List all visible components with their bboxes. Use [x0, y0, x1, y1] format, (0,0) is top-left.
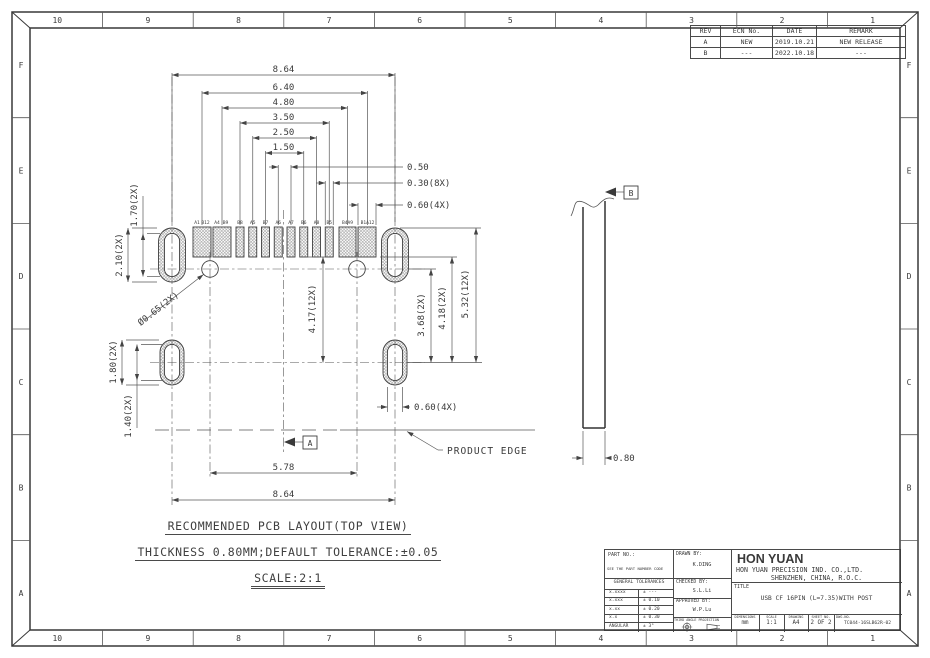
pin-label: B6: [301, 220, 307, 226]
break-line: [571, 198, 614, 216]
pin-label: B9: [223, 220, 229, 226]
revision-table-grid: REVECN No.DATEREMARKANEW2019.10.21NEW RE…: [690, 25, 906, 59]
side-view: B0.80: [571, 186, 638, 465]
slot-hole: [388, 345, 403, 381]
dimensions-label: DIMENSIONS: [731, 616, 759, 620]
rev-cell: ---: [721, 48, 773, 59]
dim-hole: Ø0.65(2X): [136, 290, 181, 329]
note-thickness: THICKNESS 0.80MM;DEFAULT TOLERANCE:±0.05: [135, 545, 442, 561]
zone-row-label: F: [907, 61, 912, 70]
datum-a-box: [303, 436, 317, 449]
npth-hole: [349, 261, 366, 278]
zone-row-label: D: [907, 272, 912, 281]
rev-header-cell: REMARK: [817, 26, 906, 37]
tol-value: ± 0.10: [643, 599, 660, 604]
general-tolerances-label: GENERAL TOLERANCES: [605, 581, 673, 586]
product-edge-label: PRODUCT EDGE: [447, 446, 528, 457]
dim-slot: 0.60(4X): [414, 403, 457, 413]
pin-label: B8: [237, 220, 243, 226]
divider: [638, 589, 639, 632]
zone-row-label: D: [19, 272, 24, 281]
dim-left: 1.70(2X): [130, 183, 140, 226]
zone-column-label: 6: [417, 16, 422, 25]
leader-dimensions: 0.500.30(8X)0.60(4X): [269, 163, 450, 225]
checked-by-value: S.L.Li: [673, 589, 731, 594]
tol-value: ± 0.20: [643, 608, 660, 613]
pin-label: B7: [263, 220, 269, 226]
zone-column-label: 1: [870, 634, 875, 643]
title-label: TITLE: [734, 585, 749, 590]
product-edge: PRODUCT EDGE: [155, 430, 535, 457]
third-angle-projection-icon: [679, 622, 727, 632]
zone-column-label: 3: [689, 16, 694, 25]
dim-vertical: 5.32(12X): [461, 270, 471, 319]
zone-column-label: 4: [598, 16, 603, 25]
drawn-by-label: DRAWN BY:: [676, 553, 702, 558]
dim-leader: 0.30(8X): [407, 179, 450, 189]
zone-row-label: E: [907, 167, 912, 176]
zone-row-label: F: [19, 61, 24, 70]
zone-row-label: C: [907, 378, 912, 387]
revision-table: REVECN No.DATEREMARKANEW2019.10.21NEW RE…: [690, 25, 901, 59]
title-block: PART NO.: SEE THE PART NUMBER CODE GENER…: [604, 549, 901, 631]
smt-pad-wide: [213, 227, 231, 257]
part-no-value: SEE THE PART NUMBER CODE: [607, 567, 663, 571]
dim-top: 3.50: [273, 113, 295, 123]
rev-cell: NEW RELEASE: [817, 37, 906, 48]
sheet-label: SHEET NO.: [808, 616, 834, 620]
drawn-by-value: K.DING: [673, 563, 731, 568]
mounting-slot-pad: [382, 228, 409, 282]
rev-header-cell: REV: [691, 26, 721, 37]
vertical-dimensions: 4.17(12X)3.68(2X)4.18(2X)5.32(12X): [305, 228, 482, 363]
checked-by-label: CHECKED BY:: [676, 581, 708, 586]
tol-value: ± ---: [643, 591, 657, 596]
pin-label: A7: [288, 220, 294, 226]
drawing-size-label: DRAWING: [784, 616, 808, 620]
projection-label: THIRD ANGLE PROJECTION: [674, 619, 719, 622]
dim-top: 2.50: [273, 128, 295, 138]
rev-cell: 2019.10.21: [773, 37, 817, 48]
slot-width-dimension: 0.60(4X): [377, 387, 457, 413]
divider: [731, 550, 732, 632]
dim-bottom: 8.64: [273, 490, 295, 500]
pin-label: A6: [275, 220, 281, 226]
part-no-label: PART NO.:: [608, 553, 635, 558]
scale-value: 1:1: [759, 621, 784, 627]
zone-column-label: 3: [689, 634, 694, 643]
zone-column-label: 2: [780, 634, 785, 643]
pin-label: A5: [250, 220, 256, 226]
zone-column-label: 4: [598, 634, 603, 643]
drawing-size-value: A4: [784, 621, 808, 627]
mounting-slot-pad: [160, 340, 184, 385]
smt-pad-narrow: [325, 227, 333, 257]
slot-hole: [388, 234, 403, 277]
smt-pad-narrow: [236, 227, 244, 257]
dwg-no-value: TC044-16SLB62R-02: [834, 622, 901, 627]
divider: [673, 578, 731, 579]
datum-a-label: A: [308, 439, 313, 448]
rev-cell: B: [691, 48, 721, 59]
dwg-no-label: DWG.NO.: [836, 616, 851, 620]
sheet-value: 2 OF 2: [808, 621, 834, 627]
dim-vertical: 4.17(12X): [308, 285, 318, 334]
dim-leader: 0.50: [407, 163, 429, 173]
rev-cell: NEW: [721, 37, 773, 48]
tol-label: x.xxxx: [609, 591, 626, 596]
zone-row-label: C: [19, 378, 24, 387]
dim-left: 1.40(2X): [124, 394, 134, 437]
dim-top: 6.40: [273, 83, 295, 93]
smt-pad-narrow: [249, 227, 257, 257]
rev-cell: 2022.10.18: [773, 48, 817, 59]
dim-thickness: 0.80: [613, 454, 635, 464]
dim-top: 4.80: [273, 98, 295, 108]
zone-column-label: 1: [870, 16, 875, 25]
hole-callout: Ø0.65(2X): [136, 275, 204, 329]
pin-label: B5: [326, 220, 332, 226]
smt-pad-narrow: [300, 227, 308, 257]
tol-label: ANGULAR: [609, 625, 628, 630]
pin-label: B1A12: [361, 220, 375, 226]
tol-label: x.xxx: [609, 599, 623, 604]
zone-row-label: E: [19, 167, 24, 176]
dim-bottom: 5.78: [273, 463, 295, 473]
zone-column-label: 9: [145, 16, 150, 25]
slot-hole: [165, 345, 180, 381]
zone-column-label: 5: [508, 16, 513, 25]
company-name: HON YUAN: [737, 553, 803, 566]
datum-b-triangle: [605, 188, 616, 197]
company-location: SHENZHEN, CHINA, R.O.C.: [731, 575, 902, 582]
smt-pad-wide: [339, 227, 356, 257]
dim-leader: 0.60(4X): [407, 201, 450, 211]
dim-vertical: 3.68(2X): [417, 293, 427, 336]
smt-pad-narrow: [262, 227, 270, 257]
zone-column-label: 7: [327, 16, 332, 25]
dim-left: 2.10(2X): [115, 233, 125, 276]
tol-value: ± 3°: [643, 625, 654, 630]
company-full: HON YUAN PRECISION IND. CO.,LTD.: [736, 567, 863, 574]
smt-pad-narrow: [313, 227, 321, 257]
engineering-drawing-page: RECOMMENDED PCB LAYOUT(TOP VIEW) THICKNE…: [0, 0, 930, 658]
footprint-pads: [159, 227, 409, 385]
pin-label: B12: [201, 220, 210, 226]
bottom-dimensions: 5.788.64: [172, 463, 395, 502]
mounting-slot-pad: [383, 340, 407, 385]
datum-a: A: [284, 436, 317, 449]
pin-label: A8: [314, 220, 320, 226]
left-dimensions: 1.70(2X)2.10(2X)1.80(2X)1.40(2X): [109, 183, 162, 437]
zone-column-label: 8: [236, 634, 241, 643]
rev-header-cell: DATE: [773, 26, 817, 37]
divider: [605, 605, 673, 606]
dim-vertical: 4.18(2X): [438, 286, 448, 329]
zone-column-label: 10: [52, 634, 62, 643]
dim-left: 1.80(2X): [109, 340, 119, 383]
zone-column-label: 6: [417, 634, 422, 643]
divider: [731, 582, 902, 583]
pin-labels: A1B12A4B9B8A5B7A6A7B6A8B5B4A9B1A12: [194, 220, 374, 226]
smt-pad-narrow: [287, 227, 295, 257]
dimensions-value: mm: [731, 621, 759, 627]
dim-top: 1.50: [273, 143, 295, 153]
approved-by-label: APPROVED BY:: [676, 600, 711, 605]
zone-column-label: 8: [236, 16, 241, 25]
smt-pad-wide: [193, 227, 211, 257]
scale-label: SCALE: [759, 616, 784, 620]
smt-pad-narrow: [274, 227, 282, 257]
rev-cell: A: [691, 37, 721, 48]
zone-column-label: 10: [52, 16, 62, 25]
tol-label: x.x: [609, 616, 617, 621]
zone-column-label: 9: [145, 634, 150, 643]
zone-row-label: B: [907, 484, 912, 493]
top-dimensions: 8.646.404.803.502.501.50: [172, 65, 395, 225]
divider: [605, 622, 673, 623]
rev-header-cell: ECN No.: [721, 26, 773, 37]
drawing-title: USB CF 16PIN (L=7.35)WITH POST: [731, 596, 902, 602]
smt-pad-wide: [358, 227, 376, 257]
pcb-layout-notes: RECOMMENDED PCB LAYOUT(TOP VIEW) THICKNE…: [128, 515, 448, 593]
zone-column-label: 7: [327, 634, 332, 643]
pin-label: B4A9: [342, 220, 353, 226]
zone-row-label: A: [19, 589, 24, 598]
slot-hole: [165, 234, 180, 277]
divider: [605, 578, 673, 579]
zone-row-label: B: [19, 484, 24, 493]
datum-b-box: [624, 186, 638, 199]
note-scale: SCALE:2:1: [251, 571, 325, 587]
approved-by-value: W.P.Lu: [673, 608, 731, 613]
zone-column-label: 5: [508, 634, 513, 643]
npth-hole: [202, 261, 219, 278]
datum-a-triangle: [284, 438, 295, 447]
rev-cell: ---: [817, 48, 906, 59]
dim-top: 8.64: [273, 65, 295, 75]
tol-value: ± 0.30: [643, 616, 660, 621]
mounting-slot-pad: [159, 228, 186, 282]
zone-column-label: 2: [780, 16, 785, 25]
zone-row-label: A: [907, 589, 912, 598]
pin-label: A1: [194, 220, 200, 226]
datum-b-label: B: [629, 189, 634, 198]
tol-label: x.xx: [609, 608, 620, 613]
centerlines: [150, 77, 425, 505]
note-title: RECOMMENDED PCB LAYOUT(TOP VIEW): [165, 519, 412, 535]
pin-label: A4: [214, 220, 220, 226]
